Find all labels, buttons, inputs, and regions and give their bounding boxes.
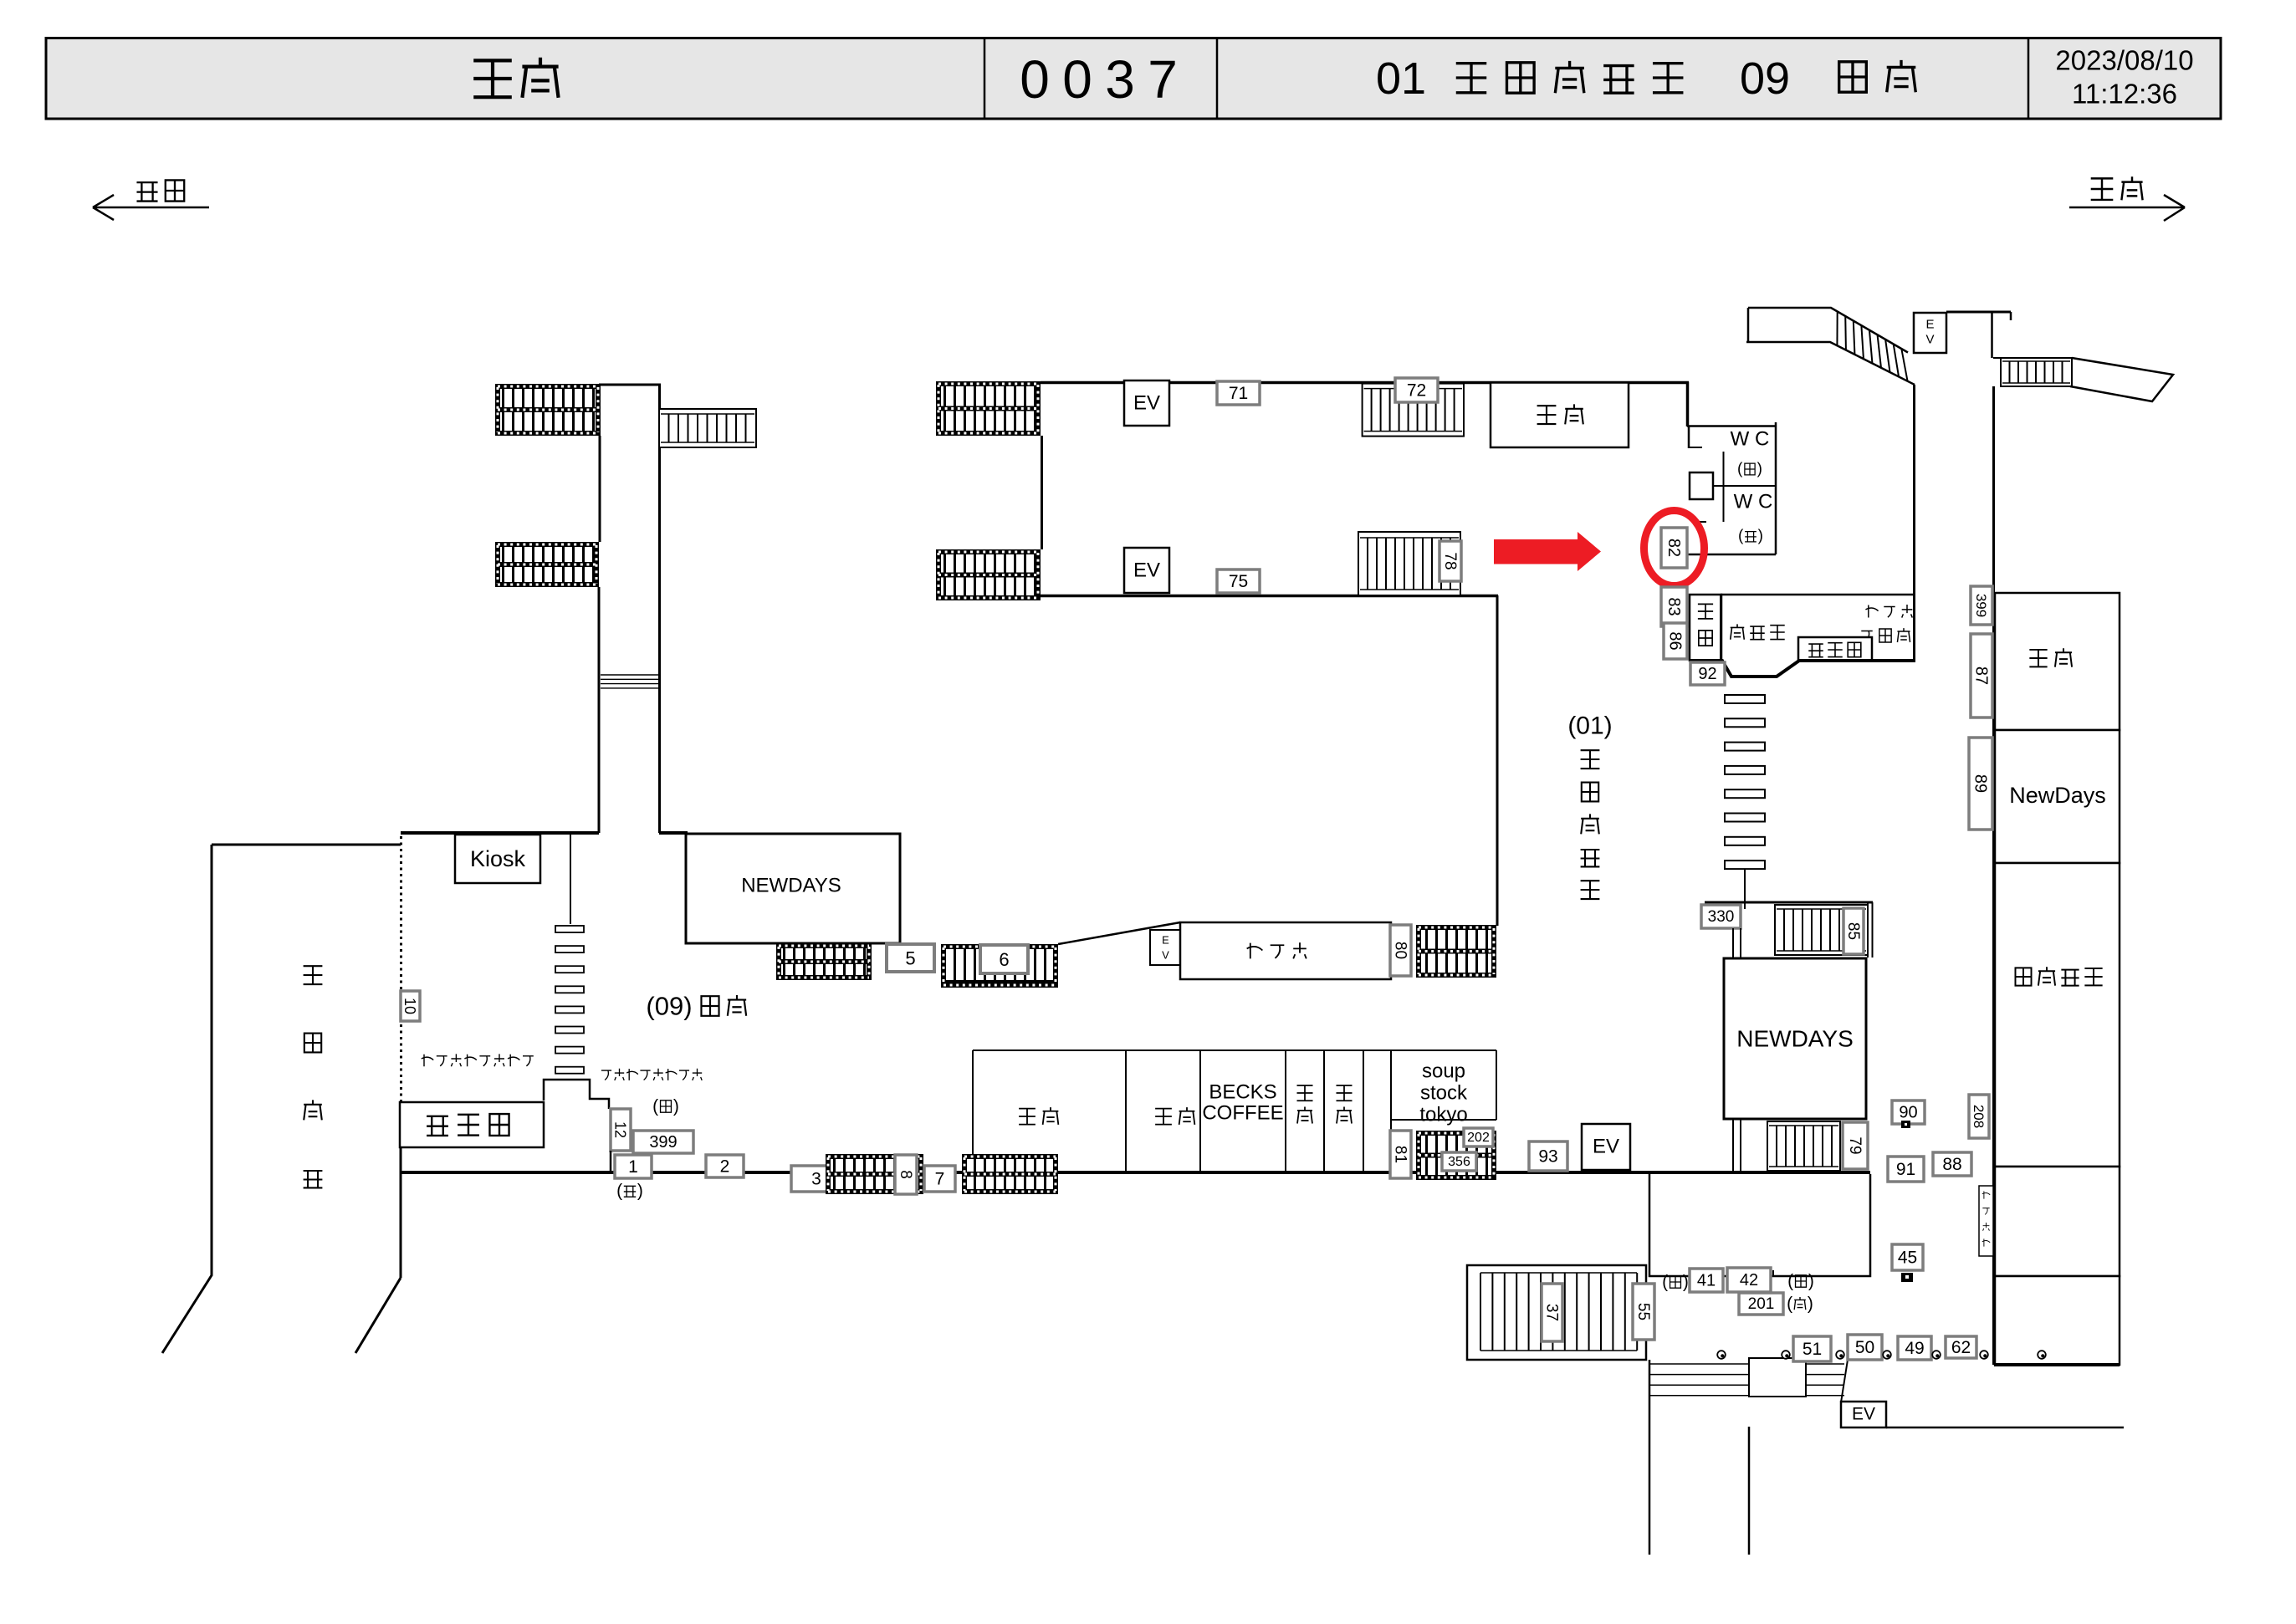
svg-text:EV: EV [1852,1405,1875,1424]
svg-text:(: ( [1737,461,1743,478]
svg-text:83: 83 [1664,597,1683,615]
svg-text:55: 55 [1634,1303,1652,1320]
svg-text:V: V [1925,333,1934,347]
svg-text:EV: EV [1133,559,1160,582]
svg-text:NEWDAYS: NEWDAYS [1736,1026,1854,1052]
svg-text:COFFEE: COFFEE [1202,1102,1283,1125]
svg-text:87: 87 [1972,666,1991,685]
svg-text:7: 7 [1148,49,1178,110]
svg-text:2: 2 [720,1157,730,1177]
svg-text:7: 7 [935,1170,945,1189]
svg-text:(01): (01) [1567,712,1612,740]
svg-text:Kiosk: Kiosk [470,846,526,871]
svg-text:50: 50 [1855,1338,1874,1357]
svg-text:72: 72 [1407,381,1426,401]
svg-text:330: 330 [1708,908,1735,926]
svg-text:8: 8 [897,1170,914,1179]
svg-text:): ) [637,1182,643,1201]
svg-text:92: 92 [1698,665,1716,683]
svg-text:EV: EV [1593,1136,1619,1158]
svg-text:12: 12 [612,1121,629,1138]
svg-text:1: 1 [628,1157,638,1177]
svg-text:78: 78 [1441,552,1459,569]
svg-text:V: V [1162,949,1169,962]
svg-text:82: 82 [1664,539,1683,557]
svg-text:202: 202 [1467,1131,1490,1145]
svg-text:0: 0 [1020,49,1050,110]
svg-text:W C: W C [1731,428,1770,451]
svg-text:80: 80 [1392,942,1409,959]
svg-text:BECKS: BECKS [1209,1081,1276,1104]
svg-text:71: 71 [1229,384,1248,403]
svg-text:): ) [673,1097,679,1116]
svg-text:42: 42 [1740,1271,1758,1289]
svg-text:E: E [1925,318,1934,332]
svg-text:(: ( [1787,1295,1792,1314]
svg-text:): ) [1808,1295,1813,1314]
svg-text:NewDays: NewDays [2009,783,2106,808]
svg-text:91: 91 [1896,1160,1915,1179]
svg-text:399: 399 [649,1133,677,1152]
svg-text:37: 37 [1543,1304,1561,1321]
svg-text:81: 81 [1392,1146,1409,1163]
svg-text:49: 49 [1905,1339,1924,1358]
svg-text:10: 10 [401,998,418,1014]
svg-text:208: 208 [1971,1105,1987,1128]
svg-text:5: 5 [905,948,915,969]
svg-text:NEWDAYS: NEWDAYS [741,875,841,897]
svg-text:6: 6 [999,949,1009,970]
svg-text:75: 75 [1229,572,1248,591]
svg-text:(: ( [1738,528,1744,545]
svg-text:soup: soup [1422,1060,1465,1083]
svg-text:(09): (09) [646,992,692,1021]
svg-text:): ) [1758,528,1763,545]
svg-text:): ) [1808,1272,1814,1291]
svg-text:W C: W C [1734,491,1773,513]
svg-text:356: 356 [1448,1155,1470,1169]
svg-text:62: 62 [1951,1338,1971,1357]
svg-text:01: 01 [1376,54,1426,104]
svg-text:90: 90 [1899,1104,1917,1122]
svg-text:85: 85 [1844,922,1862,940]
svg-text:201: 201 [1748,1295,1775,1313]
svg-text:3: 3 [811,1170,821,1189]
svg-text:51: 51 [1803,1340,1822,1359]
svg-text:41: 41 [1697,1272,1716,1290]
svg-text:89: 89 [1971,774,1990,793]
svg-text:45: 45 [1898,1249,1917,1268]
svg-text:(: ( [616,1182,622,1201]
svg-text:): ) [1757,461,1762,478]
svg-text:93: 93 [1538,1147,1557,1167]
svg-text:(: ( [652,1097,658,1116]
svg-text:86: 86 [1666,631,1685,650]
svg-text:2023/08/10: 2023/08/10 [2055,45,2193,76]
svg-text:0: 0 [1062,49,1092,110]
svg-text:EV: EV [1133,392,1160,415]
svg-text:09: 09 [1740,54,1790,104]
svg-text:(: ( [1787,1272,1793,1291]
svg-text:tokyo: tokyo [1419,1104,1467,1126]
svg-text:): ) [1683,1273,1689,1292]
svg-text:E: E [1162,934,1169,947]
svg-text:11:12:36: 11:12:36 [2072,79,2177,110]
svg-text:399: 399 [1973,594,1989,617]
svg-text:3: 3 [1105,49,1135,110]
svg-text:(: ( [1662,1273,1668,1292]
svg-text:stock: stock [1420,1082,1468,1105]
svg-text:79: 79 [1846,1136,1864,1154]
svg-text:88: 88 [1942,1155,1961,1174]
